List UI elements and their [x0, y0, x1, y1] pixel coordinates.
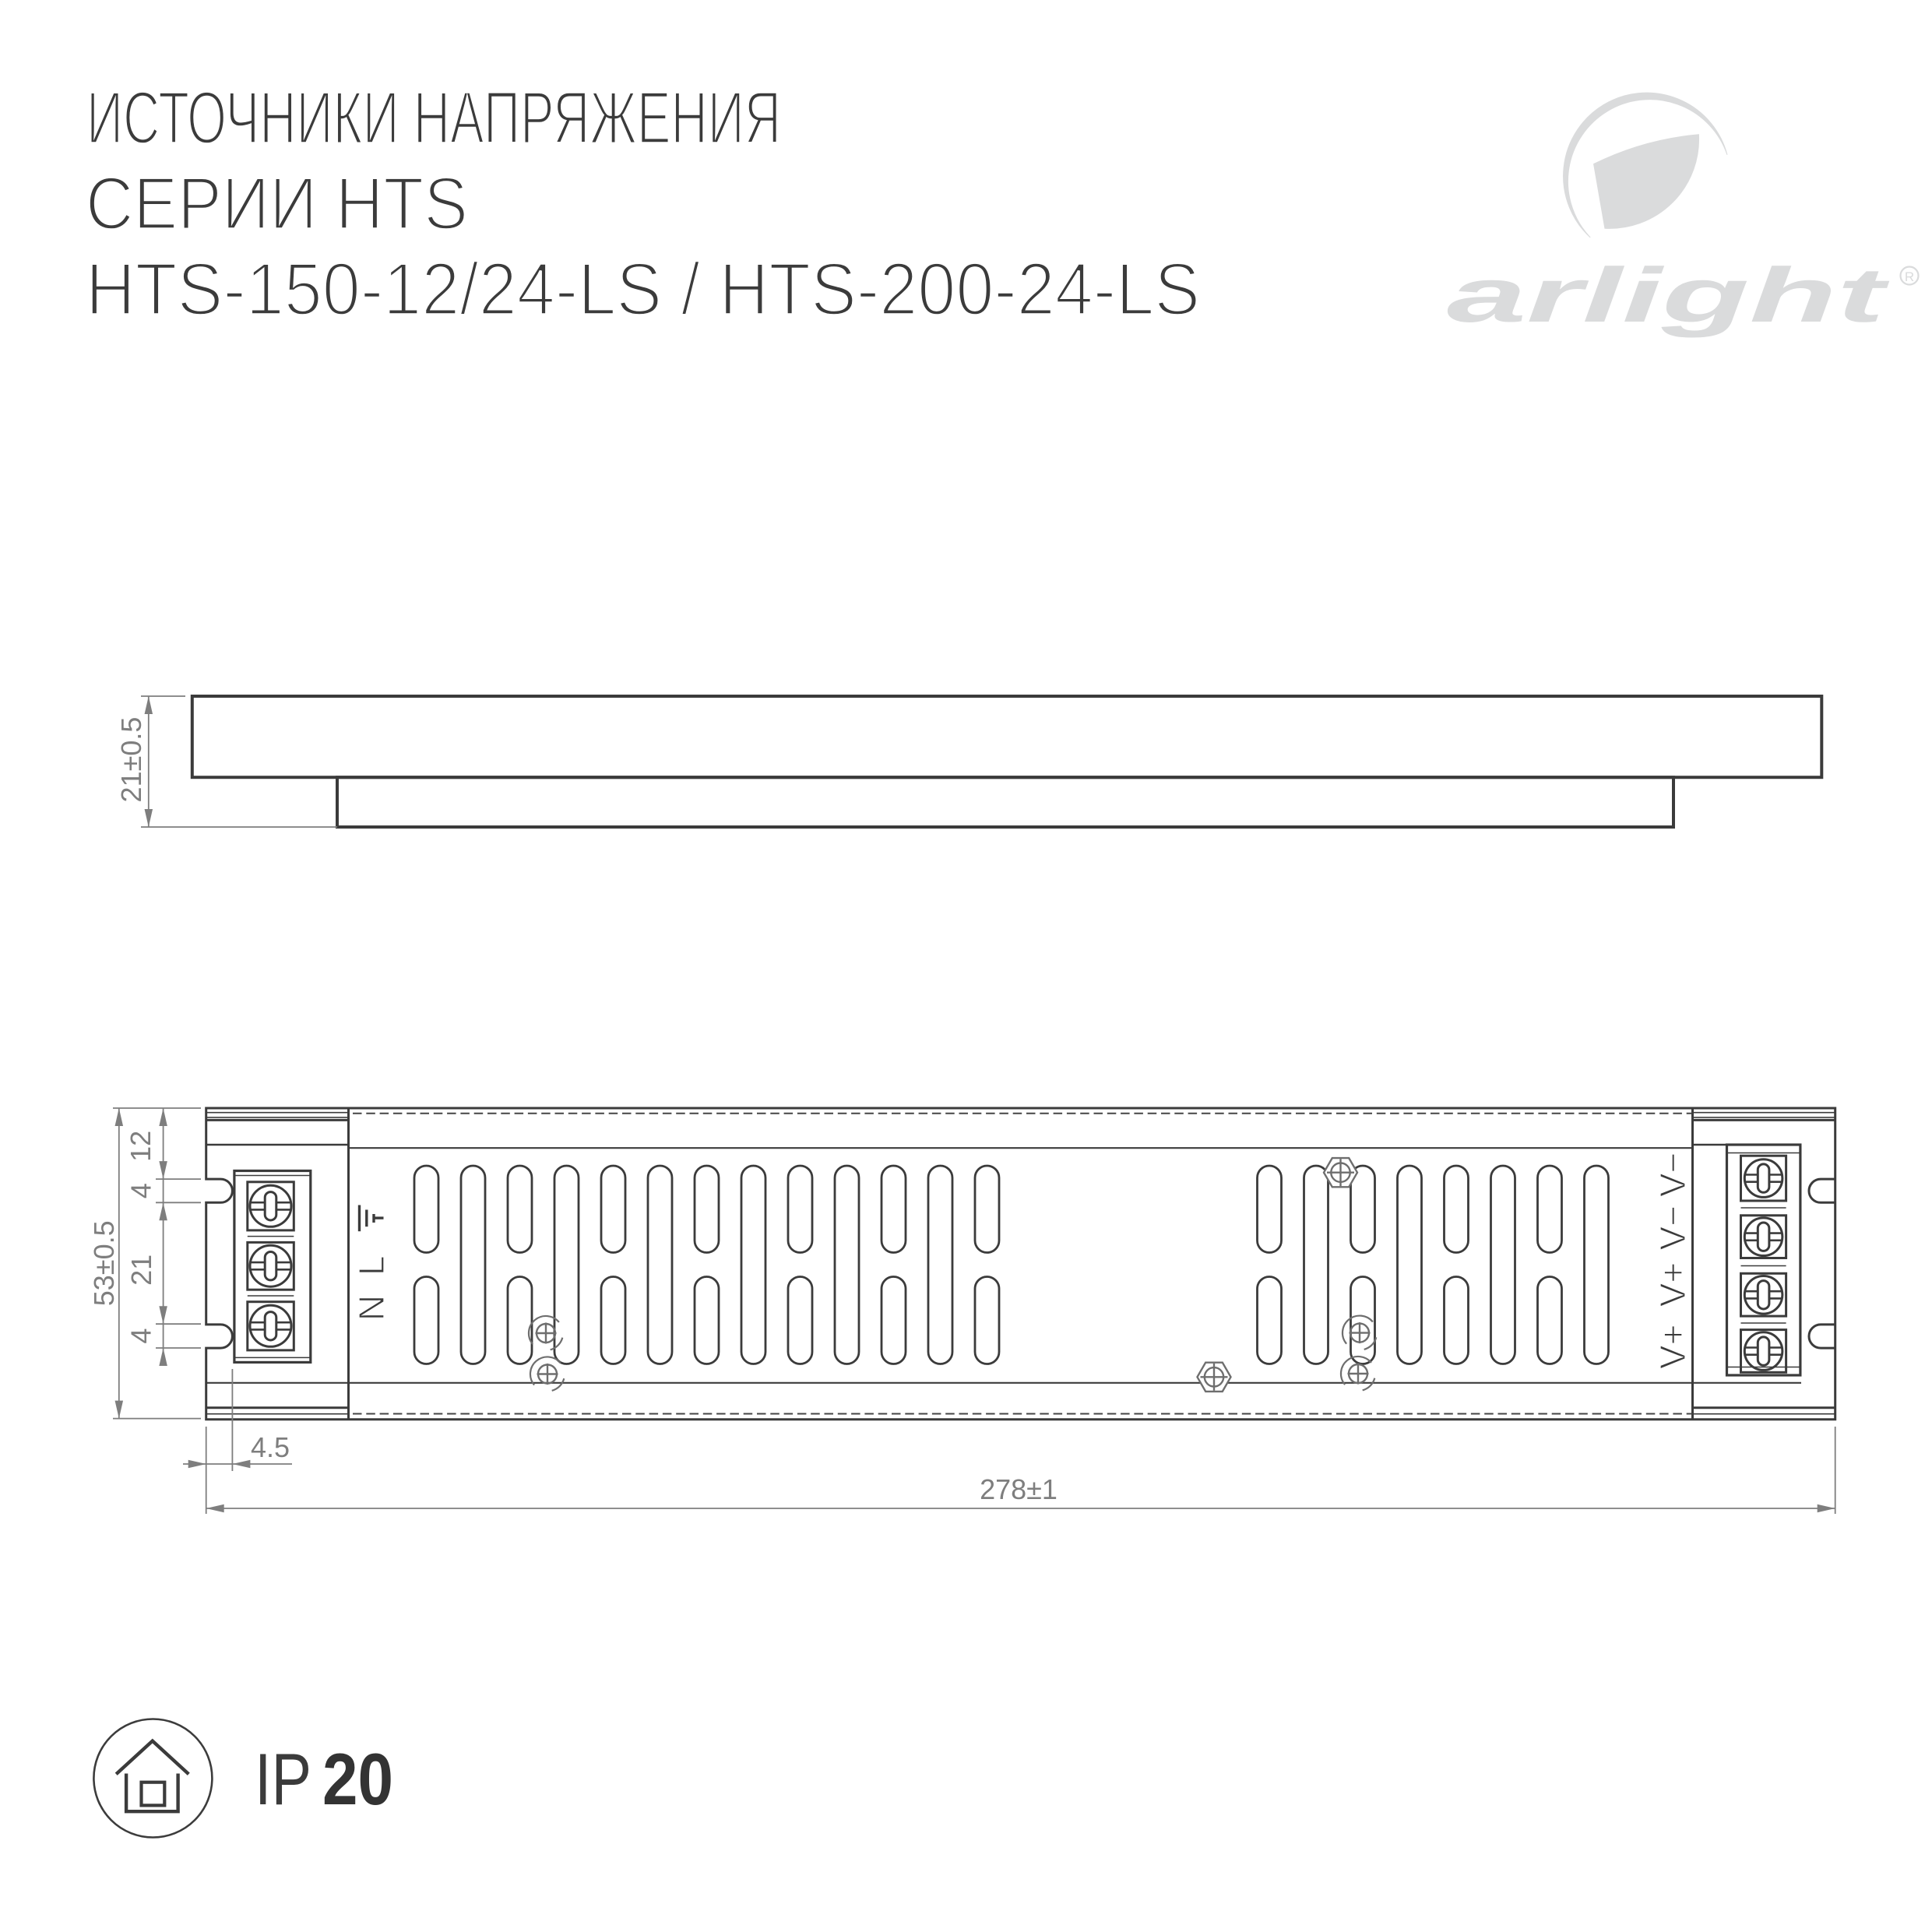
svg-text:4: 4 [125, 1183, 157, 1198]
svg-text:4.5: 4.5 [251, 1431, 290, 1463]
svg-text:ИСТОЧНИКИ НАПРЯЖЕНИЯ: ИСТОЧНИКИ НАПРЯЖЕНИЯ [86, 76, 781, 160]
svg-text:4: 4 [125, 1328, 157, 1344]
svg-text:V−: V− [1652, 1205, 1693, 1251]
svg-text:R: R [1905, 269, 1914, 284]
svg-text:21±0.5: 21±0.5 [115, 717, 147, 803]
svg-text:12: 12 [125, 1131, 157, 1162]
svg-text:V−: V− [1652, 1153, 1693, 1198]
svg-text:HTS-150-12/24-LS / HTS-200-24-: HTS-150-12/24-LS / HTS-200-24-LS [86, 248, 1200, 331]
svg-text:IP: IP [255, 1738, 311, 1820]
svg-text:arlight: arlight [1447, 252, 1890, 338]
svg-text:20: 20 [322, 1738, 393, 1820]
svg-text:21: 21 [125, 1255, 157, 1286]
svg-text:53±0.5: 53±0.5 [88, 1220, 120, 1306]
svg-text:V+: V+ [1652, 1262, 1693, 1307]
svg-text:N: N [351, 1295, 392, 1321]
svg-text:СЕРИИ HTS: СЕРИИ HTS [86, 162, 468, 245]
svg-text:278±1: 278±1 [980, 1473, 1057, 1505]
svg-text:L: L [351, 1255, 392, 1276]
svg-text:V+: V+ [1652, 1325, 1693, 1370]
